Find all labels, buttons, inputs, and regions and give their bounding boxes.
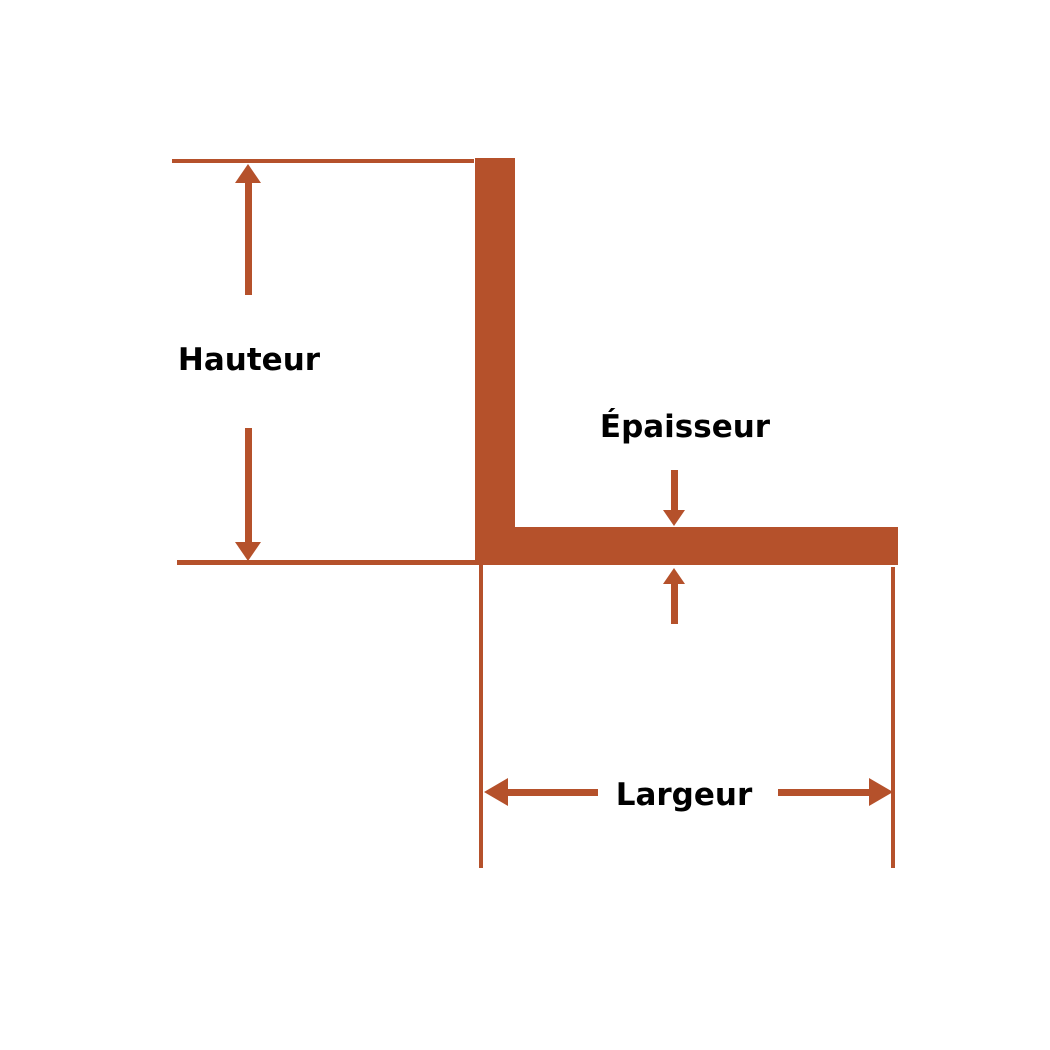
arrow-down-icon bbox=[235, 542, 261, 561]
epaisseur-label: Épaisseur bbox=[565, 409, 805, 445]
l-profile-vertical-flange bbox=[475, 158, 515, 565]
arrow-stem bbox=[671, 470, 678, 512]
hauteur-label: Hauteur bbox=[129, 342, 369, 378]
extension-line-bottom bbox=[177, 560, 475, 565]
extension-line-width-right bbox=[891, 567, 895, 868]
extension-line-width-left bbox=[479, 565, 483, 868]
l-profile-horizontal-flange bbox=[475, 527, 898, 565]
diagram-canvas: Hauteur Épaisseur Largeur bbox=[0, 0, 1050, 1050]
arrow-right-icon bbox=[869, 778, 893, 806]
arrow-left-icon bbox=[484, 778, 508, 806]
arrow-stem bbox=[245, 181, 252, 295]
arrow-stem bbox=[671, 582, 678, 624]
arrow-stem bbox=[245, 428, 252, 545]
largeur-label: Largeur bbox=[564, 777, 804, 813]
extension-line-top bbox=[172, 159, 474, 163]
arrow-down-icon bbox=[663, 510, 685, 526]
